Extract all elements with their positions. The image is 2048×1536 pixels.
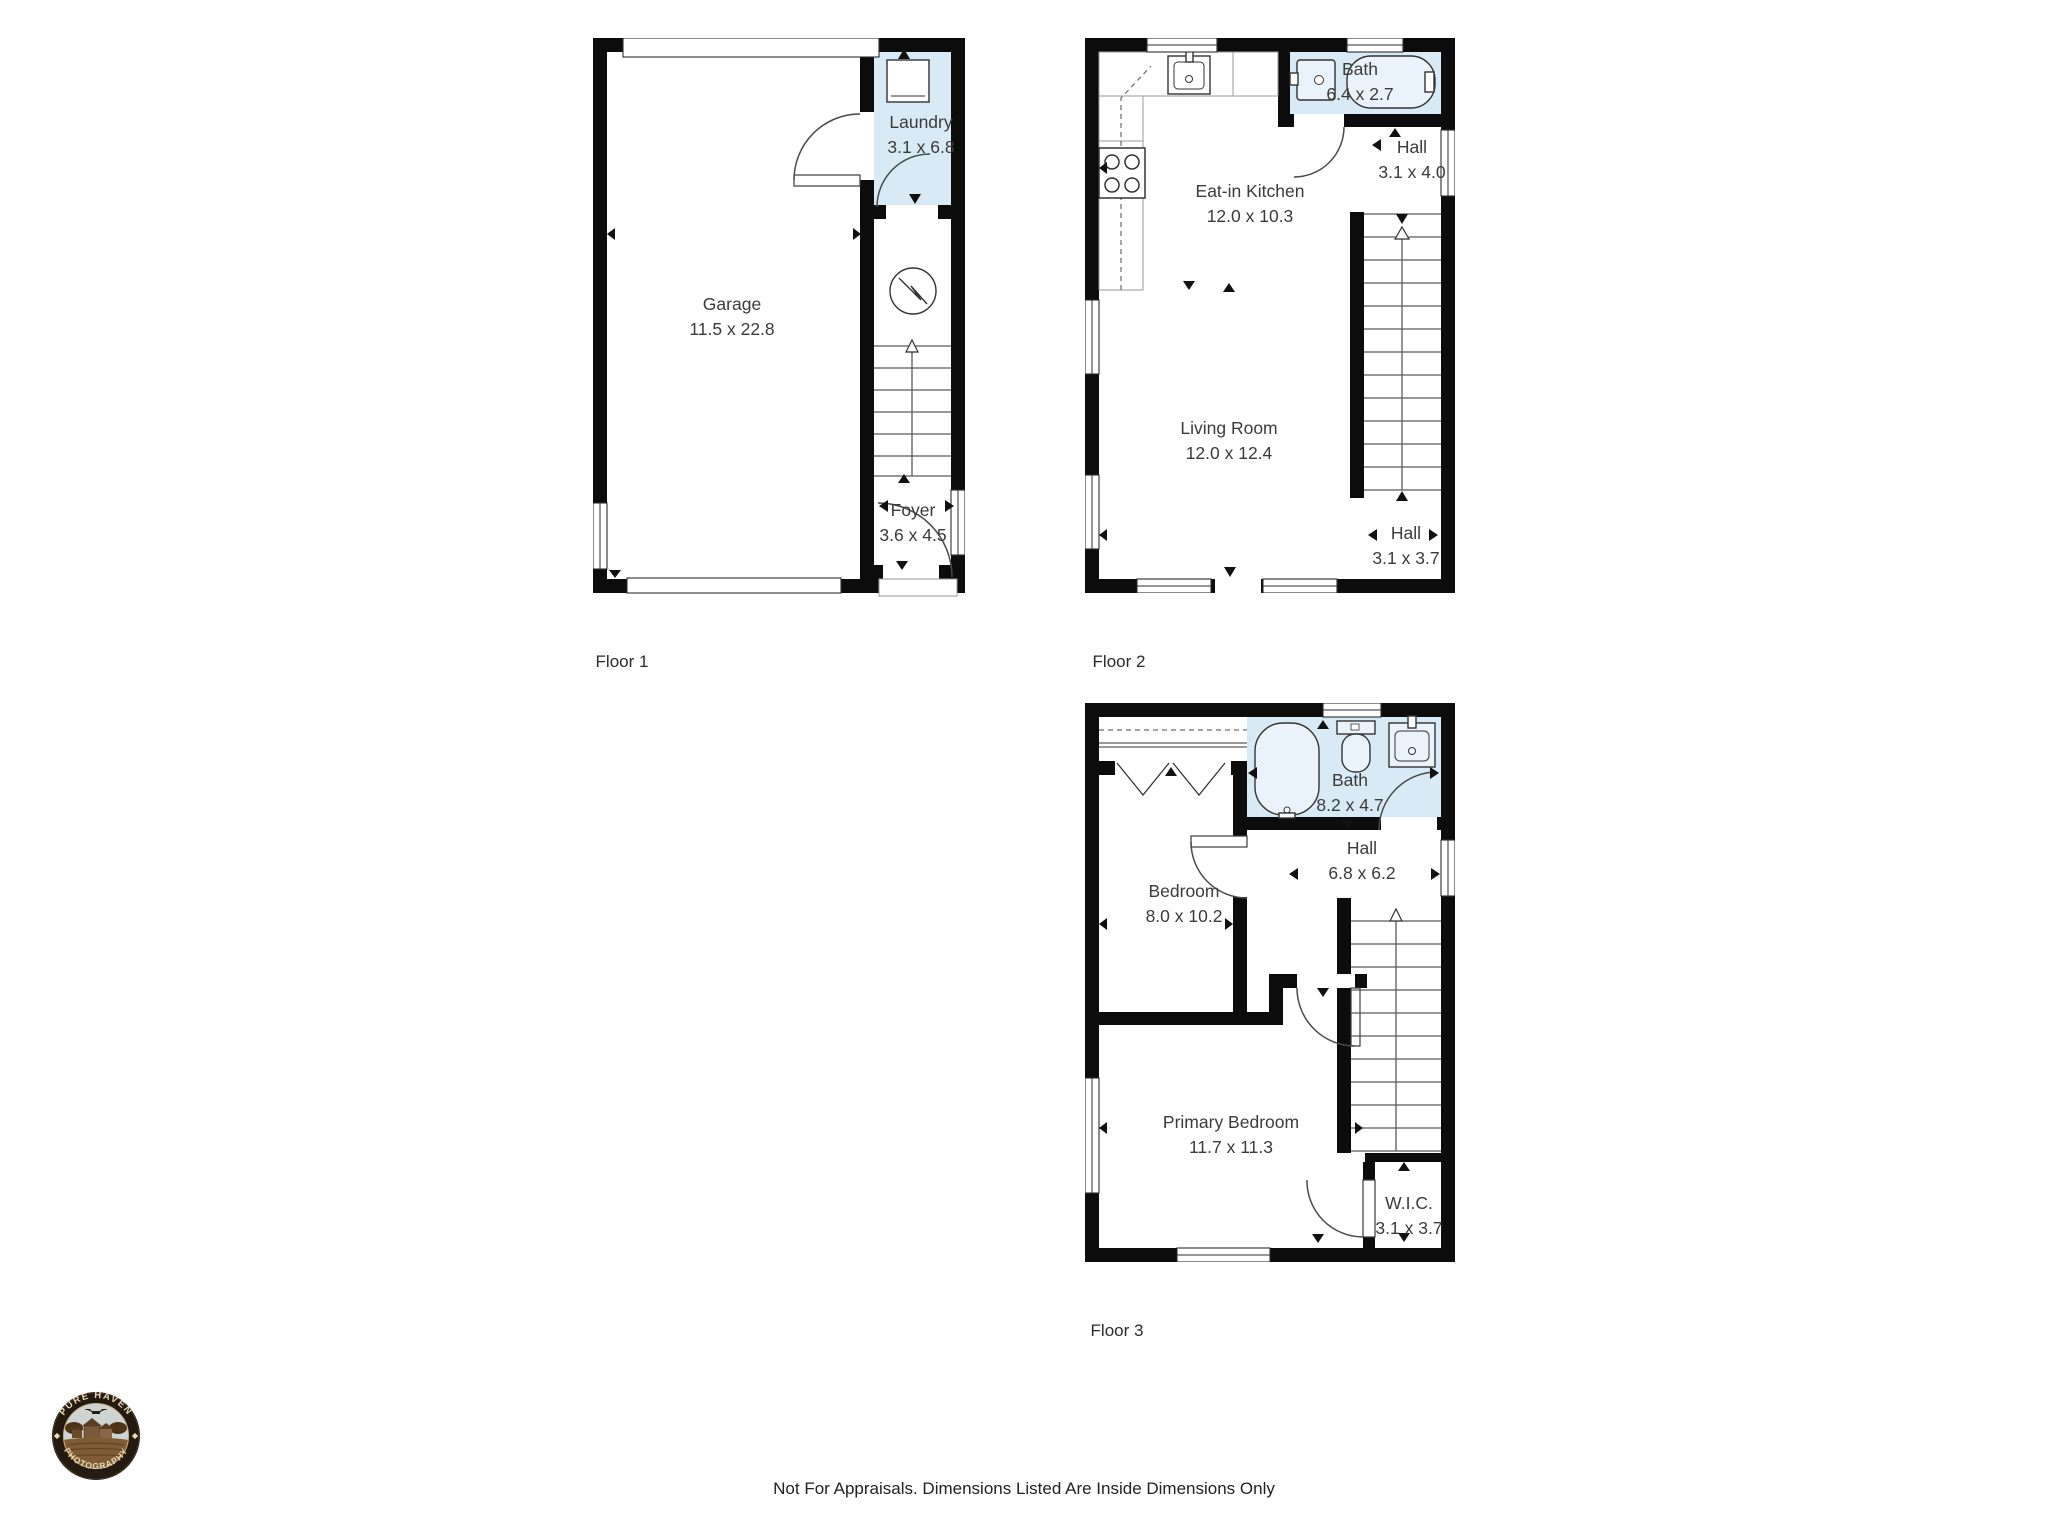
floor2-stairs	[1364, 214, 1441, 501]
floor1-hvac-symbol	[890, 268, 936, 314]
photography-logo: PURE HAVEN PHOTOGRAPHY	[48, 1388, 144, 1484]
room-label-laundry: Laundry 3.1 x 6.8	[887, 110, 954, 160]
room-name: Laundry	[887, 110, 954, 135]
room-dims: 3.1 x 6.8	[887, 135, 954, 160]
room-name: Living Room	[1180, 416, 1277, 441]
floor1-stairs	[874, 340, 951, 476]
room-name: W.I.C.	[1375, 1191, 1442, 1216]
closet-rod-icon	[1117, 763, 1169, 795]
room-name: Hall	[1328, 836, 1395, 861]
room-dims: 11.7 x 11.3	[1163, 1135, 1299, 1160]
room-label-bath-floor3: Bath 8.2 x 4.7	[1316, 768, 1383, 818]
room-dims: 3.1 x 3.7	[1372, 546, 1439, 571]
room-dims: 8.0 x 10.2	[1146, 904, 1223, 929]
garage-door-bottom	[627, 578, 841, 593]
garage-door-top	[623, 38, 879, 57]
toilet-icon	[1337, 721, 1375, 772]
sink-icon	[1389, 716, 1435, 767]
room-name: Garage	[689, 292, 774, 317]
floor3-closet	[1099, 730, 1247, 795]
floor3-plan	[1085, 703, 1455, 1262]
room-name: Bedroom	[1146, 879, 1223, 904]
floorplan-page: Garage 11.5 x 22.8 Laundry 3.1 x 6.8 Foy…	[0, 0, 2048, 1536]
disclaimer-text: Not For Appraisals. Dimensions Listed Ar…	[773, 1479, 1275, 1499]
floor1-caption: Floor 1	[596, 652, 649, 672]
washer-icon	[887, 60, 929, 102]
room-name: Bath	[1316, 768, 1383, 793]
room-dims: 12.0 x 12.4	[1180, 441, 1277, 466]
room-name: Hall	[1372, 521, 1439, 546]
room-dims: 8.2 x 4.7	[1316, 793, 1383, 818]
room-name: Eat-in Kitchen	[1196, 179, 1305, 204]
door-leaf	[1191, 836, 1247, 847]
floor2-plan	[1085, 38, 1455, 593]
stairs-up-arrow-icon	[1395, 227, 1409, 239]
room-label-foyer: Foyer 3.6 x 4.5	[879, 498, 946, 548]
room-dims: 3.1 x 3.7	[1375, 1216, 1442, 1241]
closet-rod-icon	[1173, 763, 1225, 795]
room-dims: 12.0 x 10.3	[1196, 204, 1305, 229]
room-label-bath-floor2: Bath 6.4 x 2.7	[1326, 57, 1393, 107]
room-name: Hall	[1378, 135, 1445, 160]
floor3-stairs	[1351, 909, 1441, 1151]
bathtub-icon	[1255, 723, 1319, 818]
floor3-caption: Floor 3	[1091, 1321, 1144, 1341]
door-leaf	[1363, 1180, 1375, 1237]
room-label-hall-upper-floor2: Hall 3.1 x 4.0	[1378, 135, 1445, 185]
floor2-caption: Floor 2	[1093, 652, 1146, 672]
room-name: Bath	[1326, 57, 1393, 82]
room-label-hall-lower-floor2: Hall 3.1 x 3.7	[1372, 521, 1439, 571]
front-stoop	[879, 579, 957, 596]
door-arc	[1307, 1180, 1363, 1237]
room-dims: 3.6 x 4.5	[879, 523, 946, 548]
door-leaf	[1351, 988, 1360, 1046]
room-dims: 6.8 x 6.2	[1328, 861, 1395, 886]
room-label-primary-bedroom: Primary Bedroom 11.7 x 11.3	[1163, 1110, 1299, 1160]
stairs-up-arrow-icon	[1390, 909, 1402, 921]
sink-icon	[1168, 50, 1210, 94]
room-label-eat-in-kitchen: Eat-in Kitchen 12.0 x 10.3	[1196, 179, 1305, 229]
door-arc	[1294, 127, 1344, 177]
floor2-kitchen	[1099, 50, 1278, 290]
room-label-garage: Garage 11.5 x 22.8	[689, 292, 774, 342]
room-label-living-room: Living Room 12.0 x 12.4	[1180, 416, 1277, 466]
room-dims: 3.1 x 4.0	[1378, 160, 1445, 185]
room-dims: 6.4 x 2.7	[1326, 82, 1393, 107]
room-label-hall-floor3: Hall 6.8 x 6.2	[1328, 836, 1395, 886]
room-name: Foyer	[879, 498, 946, 523]
door-leaf	[794, 175, 860, 186]
room-dims: 11.5 x 22.8	[689, 317, 774, 342]
door-arc	[794, 114, 860, 180]
room-label-bedroom: Bedroom 8.0 x 10.2	[1146, 879, 1223, 929]
room-label-wic: W.I.C. 3.1 x 3.7	[1375, 1191, 1442, 1241]
room-name: Primary Bedroom	[1163, 1110, 1299, 1135]
